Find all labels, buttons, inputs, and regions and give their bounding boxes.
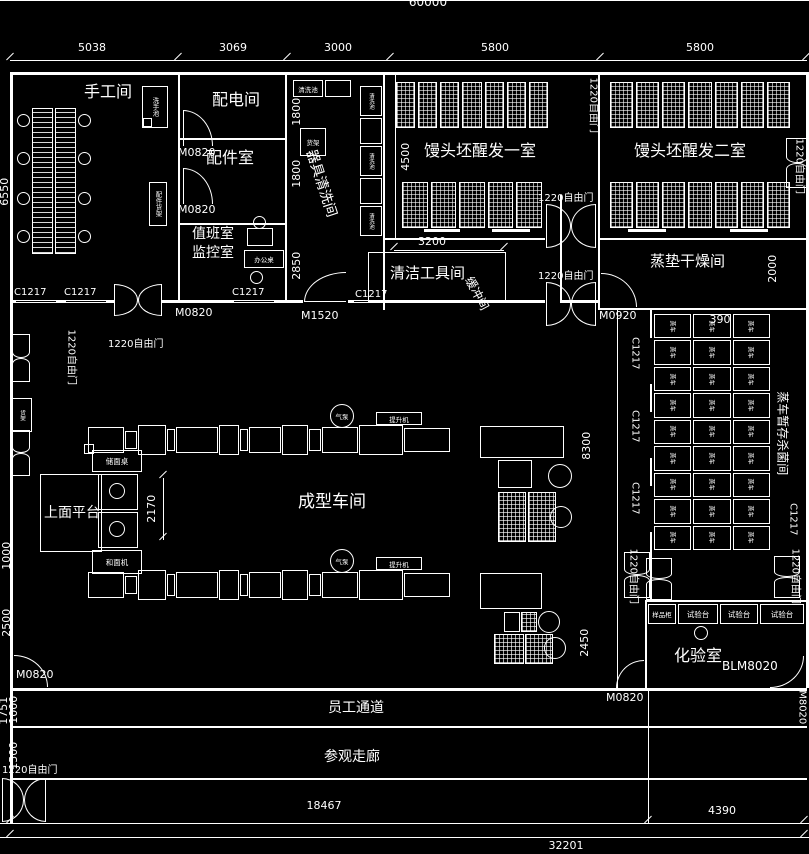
sample-cabinet: 样品柜 — [648, 604, 676, 624]
wash-sink: 清洗池 — [360, 146, 382, 176]
dim-32201: 32201 — [516, 840, 616, 852]
line-equipment — [504, 612, 520, 632]
steam-cart-grid: 蒸车 蒸车 蒸车 蒸车 蒸车 蒸车 蒸车 蒸车 蒸车 蒸车 蒸车 蒸车 蒸车 蒸… — [654, 314, 770, 550]
dim-top-4: 5800 — [455, 42, 535, 54]
dim-1000b: 1000 — [8, 690, 20, 730]
air-pump-tag: 气泵 — [330, 404, 354, 428]
label-power-room: 配电间 — [212, 92, 260, 109]
door-label-m0820: M0820 — [175, 307, 213, 319]
wall — [645, 600, 806, 602]
steam-cart: 蒸车 — [654, 314, 691, 338]
steam-cart: 蒸车 — [693, 526, 730, 550]
label-monitor-room: 监控室 — [192, 246, 234, 261]
dim-extension-line — [617, 308, 618, 690]
rack-panel — [662, 182, 685, 228]
steam-cart: 蒸车 — [654, 446, 691, 470]
label-upper-platform: 上面平台 — [44, 506, 100, 521]
dim-2850: 2850 — [291, 246, 303, 286]
production-line-2 — [88, 569, 482, 601]
steam-cart: 蒸车 — [654, 367, 691, 391]
steam-cart: 蒸车 — [693, 393, 730, 417]
counter — [360, 178, 382, 204]
wash-sink-label: 清洗池 — [298, 84, 318, 94]
rack-track — [424, 229, 460, 232]
dim-1800a: 1800 — [291, 92, 303, 132]
door-arc — [304, 272, 346, 302]
door-label-m8020-v: M8020 — [796, 679, 807, 735]
shelf: 货架 — [300, 128, 326, 156]
label-parts-room: 配件室 — [206, 150, 254, 167]
double-swing-door — [646, 558, 672, 600]
label-staff-corridor: 员工通道 — [328, 701, 384, 716]
label-laboratory: 化验室 — [674, 648, 722, 665]
steam-cart: 蒸车 — [654, 473, 691, 497]
test-bench-label: 试验台 — [771, 609, 794, 620]
test-bench: 试验台 — [760, 604, 804, 624]
window-core — [234, 301, 274, 302]
double-swing-door — [2, 778, 46, 822]
test-bench-label: 试验台 — [687, 609, 710, 620]
wall — [598, 238, 806, 240]
line-equipment — [480, 426, 564, 458]
label-cleaning-tools-room: 清洁工具间 — [390, 266, 465, 282]
test-bench: 试验台 — [720, 604, 758, 624]
window-core — [650, 412, 652, 458]
steam-cart: 蒸车 — [654, 420, 691, 444]
wall-top — [10, 72, 807, 75]
door-arc — [616, 660, 644, 688]
parts-shelf: 配件货架 — [149, 182, 167, 226]
label-proofing-room-1: 馒头坯醒发一室 — [424, 143, 536, 160]
rack-panel — [715, 182, 738, 228]
dim-top-5: 5800 — [660, 42, 740, 54]
hand-wash-sink-label: 洗手池 — [150, 97, 160, 117]
door-label-free-1220: 1220自由门 — [108, 340, 163, 351]
window-core — [16, 301, 56, 302]
dim-top-3: 3000 — [298, 42, 378, 54]
steam-cart: 蒸车 — [733, 314, 770, 338]
proofing-racks — [610, 82, 790, 128]
wall-bottom-main — [10, 688, 807, 691]
label-cart-storage-room: 蒸车暂存杀菌间 — [776, 381, 789, 485]
chair — [250, 271, 263, 284]
double-swing-door — [546, 204, 596, 248]
rack-panel — [688, 82, 711, 128]
window-label-c1217: C1217 — [64, 288, 96, 299]
dim-top-2: 3069 — [193, 42, 273, 54]
wash-sink: 清洗池 — [360, 206, 382, 236]
steam-cart: 蒸车 — [654, 393, 691, 417]
rack-track — [492, 229, 530, 232]
rack-panel — [662, 82, 685, 128]
door-label-m0820: M0820 — [178, 204, 216, 216]
dim-3200: 3200 — [412, 236, 452, 248]
floor-plan-canvas: 60000 5038 3069 3000 5800 5800 — [0, 0, 809, 854]
rack-panel — [431, 182, 457, 228]
rack-panel — [396, 82, 415, 128]
dim-line-3200 — [394, 250, 504, 251]
dim-18467: 18467 — [274, 800, 374, 812]
rack-panel — [741, 82, 764, 128]
line-equipment — [498, 460, 532, 488]
dim-extension-line — [648, 690, 649, 823]
steam-cart: 蒸车 — [693, 420, 730, 444]
chair — [253, 216, 266, 229]
worktable — [32, 108, 53, 254]
wash-sink-label: 清洗池 — [367, 153, 375, 170]
flour-table: 储面桌 — [92, 450, 142, 472]
window-label-c1217: C1217 — [355, 290, 387, 301]
shelf: 货架 — [12, 398, 32, 432]
window-core — [650, 338, 652, 384]
rack-panel — [610, 182, 633, 228]
stool — [78, 192, 91, 205]
door-arc — [601, 273, 637, 307]
door-label-free-1220-v: 1220自由门 — [65, 329, 76, 385]
proofing-racks — [610, 182, 790, 228]
sink-basin — [143, 118, 152, 127]
bottom-dim-line-2 — [0, 837, 809, 838]
label-utensil-washing-room: 器具清洗间 — [303, 148, 341, 227]
door-label-free-1220: 1220自由门 — [538, 194, 593, 205]
window-label-c1217-v: C1217 — [629, 409, 640, 443]
line-drum — [548, 464, 572, 488]
wall — [645, 600, 647, 690]
wash-sink-label: 清洗池 — [367, 93, 375, 110]
air-pump-label: 气泵 — [336, 556, 349, 566]
dim-4500: 4500 — [400, 137, 412, 177]
dough-mixer: 和面机 — [92, 550, 142, 574]
door-label-free-1220-v: 1220自由门 — [587, 77, 598, 133]
top-dim-line — [10, 60, 807, 61]
hoist-tag: 提升机 — [376, 412, 422, 425]
dim-total-width: 60000 — [398, 0, 458, 9]
window-label-c1217: C1217 — [232, 288, 264, 299]
counter — [360, 118, 382, 144]
hoist-tag: 提升机 — [376, 557, 422, 570]
rack-panel — [462, 82, 481, 128]
dim-2450: 2450 — [579, 623, 591, 663]
rack-panel — [688, 182, 711, 228]
dim-top-1: 5038 — [52, 42, 132, 54]
door-label-m0820: M0820 — [16, 669, 54, 681]
rack-panel — [767, 82, 790, 128]
label-forming-workshop: 成型车间 — [298, 494, 366, 512]
window-label-c1217-v: C1217 — [629, 336, 640, 370]
line-rack — [494, 634, 524, 664]
wall — [598, 75, 600, 310]
rack-panel — [488, 182, 514, 228]
rack-panel — [402, 182, 428, 228]
rack-panel — [418, 82, 437, 128]
steam-cart: 蒸车 — [693, 446, 730, 470]
steam-cart: 蒸车 — [733, 340, 770, 364]
window-label-c1217: C1217 — [14, 288, 46, 299]
steam-cart: 蒸车 — [654, 526, 691, 550]
wall — [285, 75, 287, 300]
line-rack — [498, 492, 526, 542]
double-swing-door — [546, 282, 596, 326]
door-label-m0920: M0920 — [599, 310, 637, 322]
double-swing-door — [12, 430, 30, 476]
steam-cart: 蒸车 — [733, 473, 770, 497]
proofing-racks — [396, 82, 548, 128]
dim-6550: 6550 — [0, 172, 11, 212]
door-label-m1520: M1520 — [301, 310, 339, 322]
stool — [78, 152, 91, 165]
steam-cart: 蒸车 — [654, 499, 691, 523]
test-bench-label: 试验台 — [728, 609, 751, 620]
steam-cart: 蒸车 — [733, 393, 770, 417]
stool — [78, 114, 91, 127]
window-core — [650, 486, 652, 532]
wall-corridor-1 — [10, 726, 807, 728]
door-label-m0820: M0820 — [606, 692, 644, 704]
wall — [161, 300, 303, 303]
stool — [17, 192, 30, 205]
label-handwork-room: 手工间 — [84, 84, 132, 101]
wall — [180, 223, 285, 225]
dim-4390: 4390 — [682, 805, 762, 817]
rack-panel — [767, 182, 790, 228]
double-swing-door — [114, 284, 162, 316]
sample-cabinet-label: 样品柜 — [652, 609, 672, 619]
air-pump-tag: 气泵 — [330, 549, 354, 573]
door-label-free-1220-v: 1220自由门 — [789, 548, 800, 604]
hoist-label: 提升机 — [389, 559, 409, 569]
stool — [17, 152, 30, 165]
wash-sink-label: 清洗池 — [367, 213, 375, 230]
steam-cart: 蒸车 — [693, 473, 730, 497]
office-desk: 办公桌 — [244, 250, 284, 268]
worktable — [55, 108, 76, 254]
label-mat-drying-room: 蒸垫干燥间 — [650, 254, 725, 270]
wall — [178, 75, 180, 300]
window-core — [66, 301, 106, 302]
rack-panel — [636, 182, 659, 228]
mixer-bowl — [109, 483, 125, 499]
hoist-label: 提升机 — [389, 414, 409, 424]
chair — [694, 626, 708, 640]
label-duty-room: 值班室 — [192, 227, 234, 242]
counter — [325, 80, 351, 97]
steam-cart: 蒸车 — [733, 367, 770, 391]
computer-desk — [247, 228, 273, 246]
rack-panel — [610, 82, 633, 128]
label-visitor-corridor: 参观走廊 — [324, 750, 380, 765]
stool — [78, 230, 91, 243]
steam-cart: 蒸车 — [733, 446, 770, 470]
double-swing-door — [12, 334, 30, 382]
rack-panel — [636, 82, 659, 128]
dim-1000: 1000 — [1, 536, 13, 576]
dough-mixer-label: 和面机 — [106, 557, 129, 568]
rack-track — [730, 229, 768, 232]
mixer-bowl — [109, 521, 125, 537]
rack-panel — [741, 182, 764, 228]
door-label-free-1220-v: 1220自由门 — [627, 548, 638, 604]
production-line-1 — [88, 424, 482, 456]
rack-track — [628, 229, 666, 232]
door-label-free-1220: 1220自由门 — [2, 766, 57, 777]
steam-cart: 蒸车 — [693, 367, 730, 391]
shelf-label: 货架 — [18, 410, 26, 421]
rack-panel — [459, 182, 485, 228]
rack-panel — [507, 82, 526, 128]
steam-cart: 蒸车 — [693, 340, 730, 364]
steam-cart: 蒸车 — [654, 340, 691, 364]
dim-2000: 2000 — [767, 249, 779, 289]
dim-2170: 2170 — [146, 489, 158, 529]
steam-cart: 蒸车 — [733, 526, 770, 550]
steam-cart: 蒸车 — [733, 420, 770, 444]
door-label-free-1220: 1220自由门 — [538, 272, 593, 283]
stool — [17, 230, 30, 243]
door-arc — [183, 168, 213, 204]
dim-tick — [500, 243, 508, 251]
door-label-free-1220-v: 1220自由门 — [793, 138, 804, 194]
label-proofing-room-2: 馒头坯醒发二室 — [634, 143, 746, 160]
door-arc — [183, 110, 213, 146]
steam-cart: 蒸车 — [693, 499, 730, 523]
parts-shelf-label: 配件货架 — [153, 191, 163, 217]
wash-sink: 清洗池 — [293, 80, 323, 97]
flour-table-label: 储面桌 — [106, 456, 129, 467]
bottom-dim-line — [0, 823, 809, 824]
wall-corridor-2 — [10, 778, 807, 780]
rack-panel — [516, 182, 542, 228]
line-drum — [550, 506, 572, 528]
stool — [17, 114, 30, 127]
line-equipment — [480, 573, 542, 609]
dim-1800b: 1800 — [291, 154, 303, 194]
steam-cart: 蒸车 — [733, 499, 770, 523]
rack-panel — [440, 82, 459, 128]
line-rack — [521, 612, 537, 632]
rack-panel — [529, 82, 548, 128]
window-label-c1217-v: C1217 — [787, 502, 798, 536]
rack-panel — [485, 82, 504, 128]
dim-line-2170 — [163, 478, 164, 540]
steam-cart: 蒸车 — [693, 314, 730, 338]
shelf-label: 货架 — [307, 137, 320, 147]
line-drum — [538, 611, 560, 633]
window-label-c1217-v: C1217 — [629, 481, 640, 515]
line-drum — [544, 637, 566, 659]
dim-2500: 2500 — [1, 603, 13, 643]
rack-panel — [715, 82, 738, 128]
proofing-racks — [402, 182, 542, 228]
test-bench: 试验台 — [678, 604, 718, 624]
air-pump-label: 气泵 — [336, 411, 349, 421]
office-desk-label: 办公桌 — [254, 254, 274, 264]
wash-sink: 清洗池 — [360, 86, 382, 116]
wall — [383, 238, 545, 240]
dim-8300: 8300 — [581, 426, 593, 466]
